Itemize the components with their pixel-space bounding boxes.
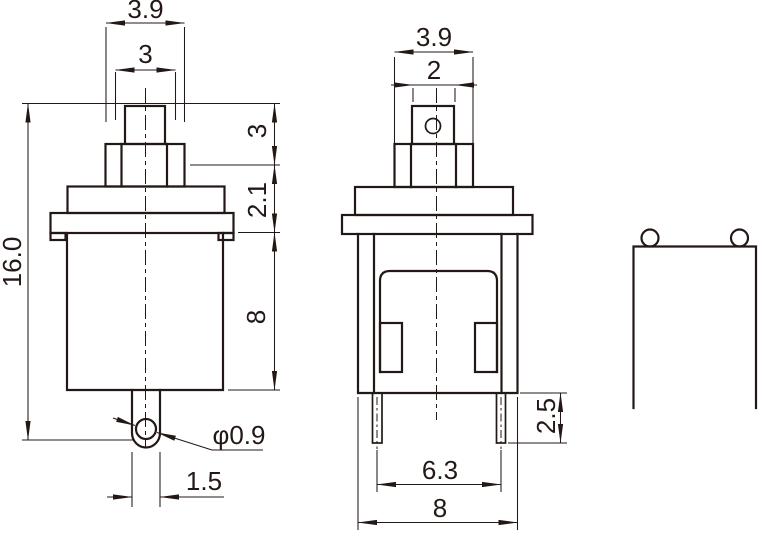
dim-front-outer-width: 3.9 [127,0,163,24]
front-flange [51,213,234,233]
side-plunger-slider [380,271,497,372]
side-collar [355,187,513,215]
front-outline [51,106,234,448]
side-flange [342,215,533,234]
front-flange-tab-left [51,233,66,240]
side-outline [342,106,533,443]
side-pin-centerlines [377,397,501,449]
side-plunger-inner-edges [411,144,456,187]
side-plunger-base [395,144,474,187]
end-terminal-left [642,230,659,247]
dim-front-tip-height: 3 [242,124,272,138]
front-flange-tab-right [219,233,234,240]
side-contact-right [475,323,497,372]
side-tip-hole [426,119,441,134]
dim-front-collar-height: 2.1 [242,182,272,218]
dim-side-outer-width: 3.9 [416,22,452,52]
end-view [634,230,757,409]
front-view: 3.9 3 16.0 3 2.1 8 φ0.9 1.5 [0,0,280,507]
dim-side-pin-length: 2.5 [531,398,561,434]
side-extension-lines [358,57,567,530]
technical-drawing: 3.9 3 16.0 3 2.1 8 φ0.9 1.5 [0,0,760,537]
dim-front-body-height: 8 [241,310,271,324]
dim-front-terminal-width: 1.5 [186,466,222,496]
dim-side-tip-width: 2 [427,55,441,85]
dim-front-total-height: 16.0 [0,237,27,288]
end-body-outline [634,247,757,409]
side-body-inner-walls [374,234,502,393]
front-plunger-inner-edges [122,144,168,187]
side-contact-left [380,323,402,372]
dim-front-tip-width: 3 [138,39,152,69]
drawing-canvas: 3.9 3 16.0 3 2.1 8 φ0.9 1.5 [0,0,760,537]
side-body [358,234,518,393]
dim-front-hole-diameter: φ0.9 [212,420,265,450]
dim-side-pin-spacing: 6.3 [422,455,458,485]
dim-side-body-width: 8 [433,493,447,523]
side-plunger-tip [412,106,454,144]
side-dimension-lines [358,52,561,523]
side-view: 3.9 2 2.5 6.3 8 [342,22,567,530]
end-terminal-right [731,230,748,247]
